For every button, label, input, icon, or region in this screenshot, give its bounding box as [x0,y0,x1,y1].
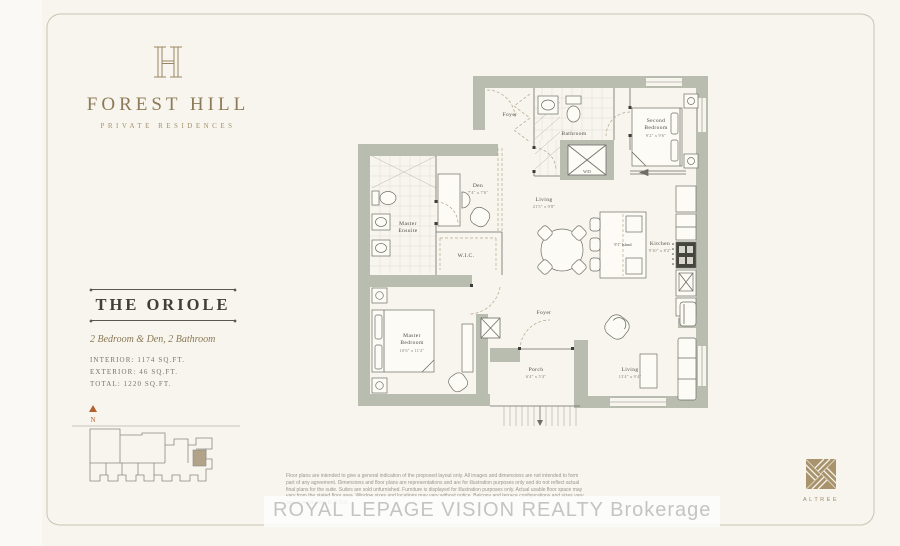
label-foyer-upper: Foyer [503,112,518,118]
north-arrow-icon: N [89,405,97,424]
label-bathroom: Bathroom [561,131,587,137]
stove-icon [676,242,696,268]
label-ensuite-2: Ensuite [398,228,417,234]
floorplan-sheet: FOREST HILL PRIVATE RESIDENCES THE ORIOL… [0,0,900,546]
rule-top [92,289,234,290]
second-bedroom-furniture [632,94,698,168]
keyplan: N [72,402,242,503]
label-wic: W.I.C. [458,253,475,259]
living-furniture [602,302,696,400]
label-master-bedroom-1: Master [403,333,421,339]
kitchen-fixtures [672,186,696,316]
brokerage-watermark: ROYAL LEPAGE VISION REALTY Brokerage [264,496,720,527]
porch-steps [504,406,576,426]
label-porch: Porch [529,367,544,373]
unit-stats: INTERIOR: 1174 SQ.FT. EXTERIOR: 46 SQ.FT… [90,354,236,390]
floorplan: W/D [348,54,730,444]
laundry-closet: W/D [568,145,606,175]
label-island: 9'1" Island [614,242,631,247]
label-master-bedroom-2: Bedroom [400,340,424,346]
label-den: Den [473,183,483,189]
label-second-bedroom-1: Second [647,118,666,124]
laundry-label: W/D [583,169,591,174]
dims-living: 21'5" x 9'8" [533,204,556,209]
rule-bottom [92,320,234,321]
dims-kitchen: 9'10" x 8'2" [649,248,672,253]
stat-exterior: EXTERIOR: 46 SQ.FT. [90,366,236,378]
label-ensuite-1: Master [399,221,417,227]
brand-name: FOREST HILL [56,94,280,116]
forest-hill-monogram-icon [148,44,188,80]
unit-location-highlight [193,450,206,466]
stat-interior: INTERIOR: 1174 SQ.FT. [90,354,236,366]
scan-margin [0,0,42,546]
developer-name: ALTREE [798,497,844,503]
unit-name: THE ORIOLE [90,295,236,315]
stat-total: TOTAL: 1220 SQ.FT. [90,378,236,390]
structural-column [481,318,500,338]
ensuite-fixtures [372,191,396,256]
dining-table [537,225,588,276]
label-living2: Living [621,367,638,373]
developer-logo: ALTREE [798,459,844,503]
den-furniture [438,174,492,229]
dims-porch: 6'4" x 5'4" [526,374,546,379]
label-living: Living [535,197,552,203]
label-kitchen: Kitchen [650,241,670,247]
dims-den: 7'4" x 7'6" [468,190,488,195]
north-label: N [90,416,95,424]
label-second-bedroom-2: Bedroom [644,125,668,131]
brand-block: FOREST HILL PRIVATE RESIDENCES [56,44,280,130]
dims-second-bedroom: 9'2" x 9'6" [646,133,666,138]
altree-logo-icon [806,459,836,489]
dims-living2: 13'4" x 9'4" [619,374,642,379]
label-foyer-lower: Foyer [537,310,552,316]
dims-master-bedroom: 10'6" x 11'2" [400,348,425,353]
unit-type: 2 Bedroom & Den, 2 Bathroom [90,334,236,345]
brand-tagline: PRIVATE RESIDENCES [56,122,280,130]
unit-info: THE ORIOLE 2 Bedroom & Den, 2 Bathroom I… [90,289,236,390]
